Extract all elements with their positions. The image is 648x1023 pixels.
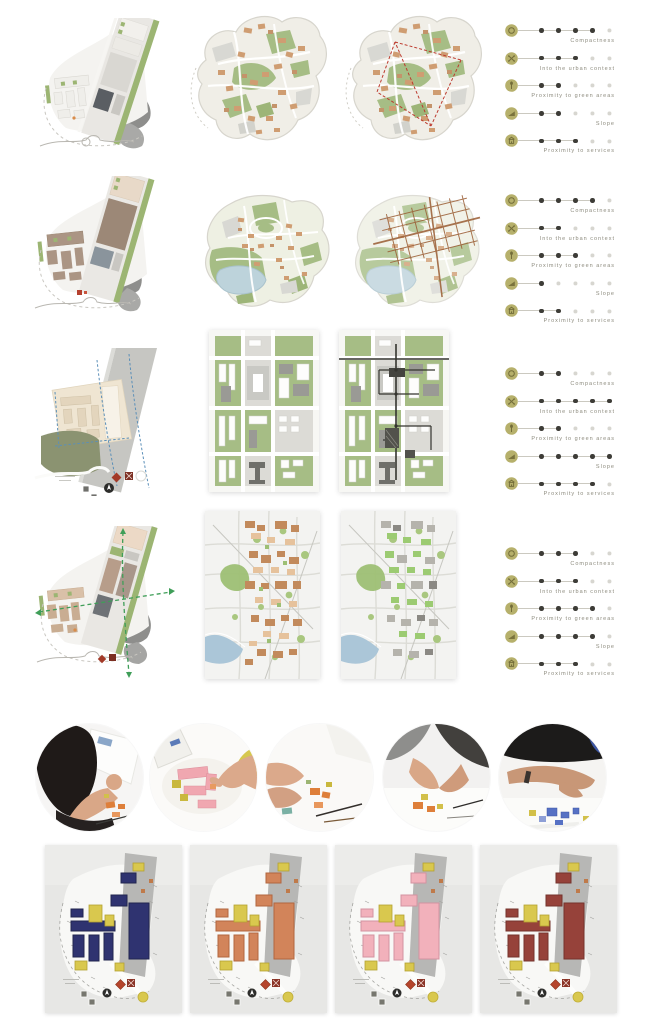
urban-context-icon [505,395,518,408]
green-areas-icon [505,79,518,92]
photo-hands-pink-blocks [150,724,257,831]
rating-line [518,30,592,31]
green-areas-icon [505,249,518,262]
criterion-label: Into the urban context [505,66,615,72]
rating-dot [590,198,595,203]
criterion-row: Proximity to green areas [505,602,640,630]
rating-dot [539,226,544,231]
rating-dot [608,635,612,639]
rating-dot [573,56,578,61]
rating-panel: CompactnessInto the urban contextProximi… [505,367,640,505]
site-plan-option-1 [30,18,170,158]
rating-dot [539,139,544,144]
criterion-label: Proximity to services [505,671,615,677]
rating-dot [556,226,561,231]
compactness-icon [505,194,518,207]
rating-dot [573,139,578,144]
rating-dot [608,199,612,203]
rating-dot [590,606,595,611]
rating-line [518,581,575,582]
rating-dot [539,662,544,667]
criterion-label: Proximity to green areas [505,616,615,622]
rating-line [518,483,592,484]
rating-dot [573,28,578,33]
urban-map-option-1-plan [178,8,333,163]
criterion-label: Compactness [505,38,615,44]
rating-dot [608,282,612,286]
rating-line [518,140,575,141]
rating-dot [608,226,612,230]
rating-dot [607,454,612,459]
rating-dot [556,399,561,404]
rating-dot [591,309,595,313]
services-icon [505,657,518,670]
criterion-row: Slope [505,277,640,305]
criterion-label: Compactness [505,561,615,567]
rating-dot [591,372,595,376]
rating-dot [591,84,595,88]
rating-dot [591,254,595,258]
urban-context-icon [505,52,518,65]
rating-line [518,283,541,284]
criterion-label: Compactness [505,208,615,214]
rating-dot [590,28,595,33]
rating-dot [556,551,561,556]
rating-dot [556,111,561,116]
rating-line [518,228,558,229]
rating-dot [539,111,544,116]
criterion-row: Proximity to services [505,477,640,505]
rating-dot [590,482,595,487]
rating-dot [608,427,612,431]
rating-dot [591,579,595,583]
rating-dot [591,226,595,230]
rating-dot [591,56,595,60]
portfolio-page: CompactnessInto the urban contextProximi… [0,0,648,1023]
criterion-label: Slope [505,291,615,297]
rating-dot [539,426,544,431]
criterion-label: Proximity to services [505,148,615,154]
rating-dot [573,634,578,639]
massing-model-maroon [480,845,617,1013]
rating-dot [556,454,561,459]
criterion-row: Proximity to services [505,304,640,332]
rating-dot [556,371,561,376]
site-plan-option-3 [25,348,175,496]
rating-dot [556,634,561,639]
rating-line [518,663,575,664]
photo-group-discussion-blocks [383,724,490,831]
rating-dot [556,662,561,667]
rating-line [518,553,575,554]
rating-dot [539,606,544,611]
criterion-row: Compactness [505,547,640,575]
criterion-label: Proximity to green areas [505,263,615,269]
urban-map-option-2-plan [192,188,334,318]
rating-dot [608,254,612,258]
rating-dot [539,309,544,314]
rating-dot [591,662,595,666]
rating-line [518,113,558,114]
services-icon [505,477,518,490]
city-map-option-4-plan [205,511,320,679]
grid-plan-option-3-analysis [339,330,449,492]
rating-dot [556,83,561,88]
rating-dot [608,84,612,88]
green-areas-icon [505,422,518,435]
rating-dot [591,552,595,556]
rating-dot [539,482,544,487]
criterion-label: Proximity to services [505,318,615,324]
rating-dot [556,198,561,203]
criterion-row: Compactness [505,24,640,52]
rating-dot [573,606,578,611]
rating-line [518,456,609,457]
rating-dot [557,282,561,286]
site-plan-option-2 [25,176,175,324]
criterion-row: Proximity to green areas [505,79,640,107]
rating-line [518,200,592,201]
criterion-row: Into the urban context [505,222,640,250]
rating-dot [573,662,578,667]
rating-dot [539,634,544,639]
rating-dot [539,198,544,203]
rating-dot [573,482,578,487]
criterion-label: Into the urban context [505,409,615,415]
rating-dot [556,28,561,33]
rating-dot [590,634,595,639]
rating-dot [539,454,544,459]
rating-dot [591,139,595,143]
criterion-label: Compactness [505,381,615,387]
rating-dot [574,84,578,88]
rating-dot [607,399,612,404]
rating-dot [574,282,578,286]
rating-dot [556,309,561,314]
criterion-label: Into the urban context [505,589,615,595]
rating-dot [556,606,561,611]
rating-dot [574,309,578,313]
criterion-row: Proximity to green areas [505,422,640,450]
rating-dot [574,427,578,431]
criterion-row: Into the urban context [505,395,640,423]
rating-dot [556,56,561,61]
rating-line [518,401,609,402]
rating-dot [539,28,544,33]
criterion-row: Into the urban context [505,575,640,603]
rating-dot [573,579,578,584]
rating-dot [608,309,612,313]
rating-dot [591,112,595,116]
rating-dot [574,372,578,376]
rating-dot [539,83,544,88]
rating-dot [590,454,595,459]
slope-icon [505,630,518,643]
rating-dot [574,226,578,230]
rating-line [518,58,575,59]
photo-arm-blue-blocks [499,724,606,831]
criterion-row: Slope [505,630,640,658]
criterion-row: Slope [505,107,640,135]
slope-icon [505,277,518,290]
massing-model-navy [45,845,182,1013]
criterion-row: Into the urban context [505,52,640,80]
rating-dot [608,56,612,60]
rating-line [518,428,558,429]
rating-dot [608,139,612,143]
criterion-label: Slope [505,644,615,650]
grid-plan-option-3 [209,330,319,492]
photo-hands-orange-blocks [266,724,373,831]
rating-dot [608,607,612,611]
urban-map-option-2-analysis [342,188,484,318]
urban-context-icon [505,222,518,235]
services-icon [505,134,518,147]
criterion-label: Slope [505,464,615,470]
rating-panel: CompactnessInto the urban contextProximi… [505,24,640,162]
rating-dot [608,112,612,116]
compactness-icon [505,367,518,380]
massing-model-orange [190,845,327,1013]
rating-dot [590,399,595,404]
rating-dot [539,371,544,376]
site-plan-option-4 [25,526,180,682]
rating-dot [556,482,561,487]
criterion-row: Slope [505,450,640,478]
criterion-row: Proximity to services [505,657,640,685]
criterion-label: Proximity to green areas [505,436,615,442]
massing-model-pink [335,845,472,1013]
rating-dot [539,56,544,61]
rating-dot [556,579,561,584]
rating-dot [539,399,544,404]
rating-dot [556,426,561,431]
slope-icon [505,107,518,120]
rating-dot [608,552,612,556]
rating-dot [573,551,578,556]
compactness-icon [505,547,518,560]
rating-dot [539,579,544,584]
criterion-row: Proximity to services [505,134,640,162]
urban-map-option-1-analysis [333,8,488,163]
rating-dot [573,399,578,404]
criterion-label: Proximity to services [505,491,615,497]
rating-line [518,85,558,86]
rating-dot [608,662,612,666]
rating-line [518,255,575,256]
rating-panel: CompactnessInto the urban contextProximi… [505,547,640,685]
rating-line [518,310,558,311]
slope-icon [505,450,518,463]
photo-person-building-model [36,724,143,831]
green-areas-icon [505,602,518,615]
criterion-row: Proximity to green areas [505,249,640,277]
rating-dot [608,29,612,33]
rating-dot [608,482,612,486]
rating-panel: CompactnessInto the urban contextProximi… [505,194,640,332]
city-map-option-4-green [341,511,456,679]
criterion-label: Slope [505,121,615,127]
rating-dot [608,372,612,376]
rating-dot [574,112,578,116]
services-icon [505,304,518,317]
rating-dot [573,198,578,203]
rating-dot [591,427,595,431]
rating-dot [556,139,561,144]
rating-line [518,608,592,609]
rating-dot [608,579,612,583]
urban-context-icon [505,575,518,588]
criterion-row: Compactness [505,367,640,395]
criterion-label: Into the urban context [505,236,615,242]
rating-dot [556,253,561,258]
rating-line [518,373,558,374]
rating-dot [573,454,578,459]
rating-dot [573,253,578,258]
rating-dot [539,253,544,258]
rating-line [518,636,592,637]
rating-dot [591,282,595,286]
rating-dot [539,551,544,556]
compactness-icon [505,24,518,37]
rating-dot [539,281,544,286]
criterion-row: Compactness [505,194,640,222]
criterion-label: Proximity to green areas [505,93,615,99]
